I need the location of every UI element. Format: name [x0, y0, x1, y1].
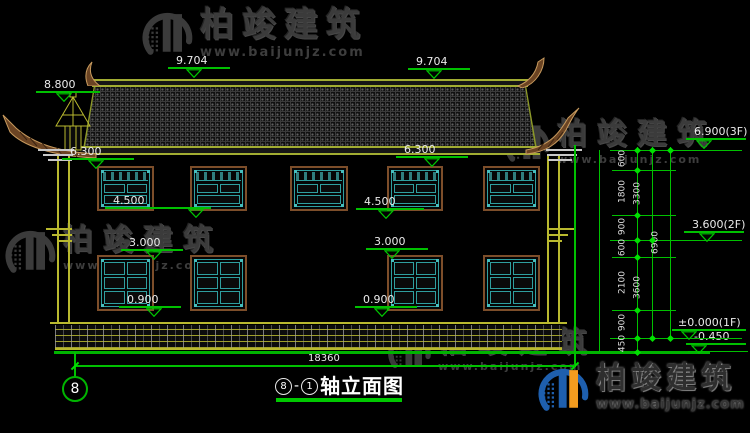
watermark-text: 柏竣建筑www.baijunjz.com [596, 364, 745, 412]
brand-logo-icon [536, 364, 592, 420]
watermark-url: www.baijunjz.com [596, 397, 745, 412]
watermark: 柏竣建筑www.baijunjz.com [536, 364, 745, 420]
brand-logo-layer: 柏竣建筑www.baijunjz.com [0, 0, 750, 433]
cad-canvas: 柏竣建筑www.baijunjz.com 柏竣建筑www.baijunjz.co… [0, 0, 750, 433]
watermark-brand: 柏竣建筑 [596, 364, 745, 395]
